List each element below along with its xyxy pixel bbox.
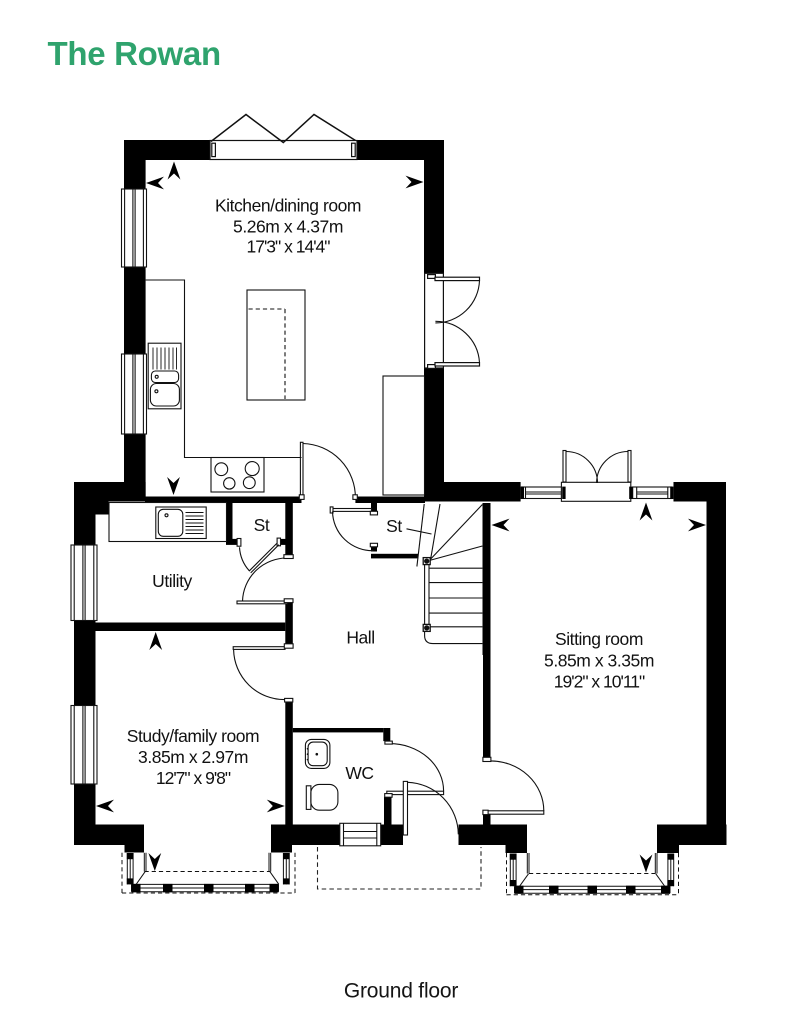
svg-text:3.85m x 2.97m: 3.85m x 2.97m: [138, 747, 248, 767]
svg-text:Sitting room: Sitting room: [555, 629, 643, 649]
svg-text:Utility: Utility: [152, 571, 192, 591]
svg-text:St: St: [254, 515, 270, 535]
svg-text:Study/family room: Study/family room: [127, 726, 259, 746]
svg-text:19'2" x 10'11": 19'2" x 10'11": [554, 672, 645, 692]
svg-text:5.26m x 4.37m: 5.26m x 4.37m: [233, 217, 343, 237]
svg-text:Ground floor: Ground floor: [344, 980, 459, 1003]
svg-text:5.85m x 3.35m: 5.85m x 3.35m: [544, 651, 654, 671]
svg-text:Kitchen/dining room: Kitchen/dining room: [215, 195, 361, 215]
svg-text:Hall: Hall: [346, 628, 374, 648]
svg-text:The Rowan: The Rowan: [48, 35, 221, 72]
svg-text:17'3" x 14'4": 17'3" x 14'4": [247, 236, 331, 256]
svg-text:WC: WC: [345, 763, 373, 783]
svg-text:12'7" x 9'8": 12'7" x 9'8": [156, 768, 231, 788]
svg-text:St: St: [386, 516, 402, 536]
